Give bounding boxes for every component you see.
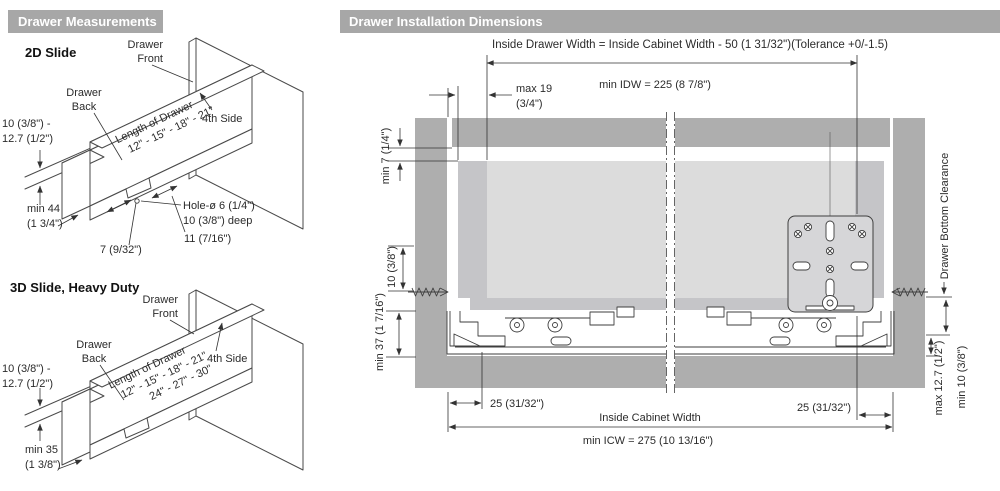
3d-front-label-2: Front (152, 308, 178, 320)
3d-thickness-label-1: 10 (3/8") - (2, 363, 51, 375)
3d-4th-side-label: 4th Side (207, 353, 247, 365)
2d-notch-label: 11 (7/16") (184, 233, 231, 245)
3d-front-label-1: Drawer (143, 294, 179, 306)
bracket-screw-hole (794, 230, 801, 237)
bracket-screw-hole (826, 247, 833, 254)
2d-hole-label-1: Hole-ø 6 (1/4") (183, 200, 255, 212)
left-header-title: Drawer Measurements (18, 14, 157, 29)
min-bottom-label: min 10 (3/8") (956, 346, 968, 409)
2d-thickness-label-2: 12.7 (1/2") (2, 133, 53, 145)
right-header-title: Drawer Installation Dimensions (349, 14, 543, 29)
2d-hole-ext (129, 203, 136, 245)
3d-thickness-label-2: 12.7 (1/2") (2, 378, 53, 390)
2d-front-label-2: Front (137, 53, 163, 65)
2d-slide-title: 2D Slide (25, 45, 76, 60)
slide-mechanism-left (447, 307, 666, 354)
bracket-screw-hole (826, 265, 833, 272)
2d-rear-hole (135, 199, 139, 203)
bracket-screw-hole (848, 223, 855, 230)
min-idw-label: min IDW = 225 (8 7/8") (599, 79, 711, 91)
drawer-bottom-left (470, 298, 666, 310)
spec-diagram-svg: Drawer Measurements Drawer Installation … (0, 0, 1000, 491)
bracket-screw-hole (804, 223, 811, 230)
offset-right-label: 25 (31/32") (797, 402, 851, 414)
2d-back-label-2: Back (72, 101, 97, 113)
rear-mounting-bracket (788, 132, 873, 312)
min37-dimension (386, 311, 416, 357)
2d-thickness-label-1: 10 (3/8") - (2, 118, 51, 130)
2d-front-label-1: Drawer (128, 39, 164, 51)
2d-4th-side-label: 4th Side (202, 113, 242, 125)
diagram-installation: Inside Drawer Width = Inside Cabinet Wid… (374, 39, 968, 447)
drawer-side-left (458, 161, 487, 298)
2d-back-label-1: Drawer (66, 87, 102, 99)
min7-label: min 7 (1/4") (380, 128, 392, 184)
drawer-spec-sheet: Drawer Measurements Drawer Installation … (0, 0, 1000, 491)
bracket-screw-hole (858, 230, 865, 237)
min37-label: min 37 (1 7/16") (374, 293, 386, 371)
drawer-bottom-clearance-label: Drawer Bottom Clearance (939, 153, 951, 280)
2d-hole-label-2: 10 (3/8") deep (183, 215, 252, 227)
break-lines (667, 112, 675, 394)
section-headers: Drawer Measurements Drawer Installation … (8, 10, 1000, 33)
slide-mechanism-right (675, 307, 894, 354)
max-bottom-label: max 12.7 (1/2") (933, 341, 945, 416)
max19-label-1: max 19 (516, 83, 552, 95)
diagram-3d-slide: 3D Slide, Heavy Duty Length of Drawer 12… (2, 280, 303, 471)
idw-formula-label: Inside Drawer Width = Inside Cabinet Wid… (492, 39, 888, 51)
bracket-slot-bottom (826, 279, 834, 297)
bracket-slot-left (793, 262, 810, 270)
2d-hole-offset-label: 7 (9/32") (100, 244, 142, 256)
icw-label: Inside Cabinet Width (599, 412, 701, 424)
max19-label-2: (3/4") (516, 98, 543, 110)
2d-back-height-1: min 44 (27, 203, 60, 215)
2d-back-height-2: (1 3/4") (27, 218, 63, 230)
offset-left-label: 25 (31/32") (490, 398, 544, 410)
3d-back-label-2: Back (82, 353, 107, 365)
3d-back-height-1: min 35 (25, 444, 58, 456)
bracket-slot-right (851, 262, 868, 270)
2d-hole-leader (141, 201, 181, 205)
3d-back-label-1: Drawer (76, 339, 112, 351)
bracket-slot-top (826, 221, 834, 241)
2d-front-leader (152, 65, 193, 82)
diagram-2d-slide: 2D Slide Length of Drawer 12" - 15" - 18… (2, 38, 303, 256)
screw-offset-label: 10 (3/8") (386, 246, 398, 288)
3d-slide-title: 3D Slide, Heavy Duty (10, 280, 140, 295)
min-icw-label: min ICW = 275 (10 13/16") (583, 435, 713, 447)
3d-back-height-2: (1 3/8") (25, 459, 61, 471)
